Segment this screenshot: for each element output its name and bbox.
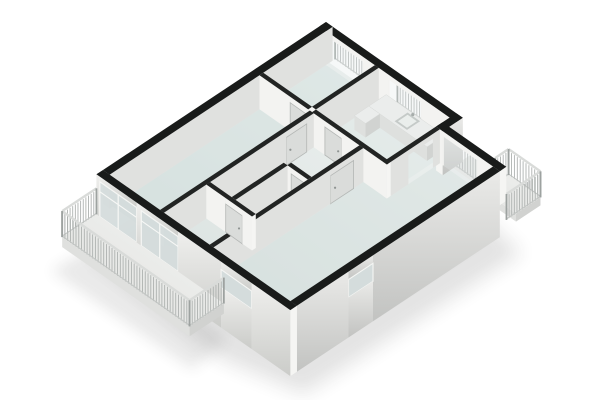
floor-plan-3d-render (0, 0, 600, 400)
faucet-icon (411, 113, 414, 116)
door-handle-icon (238, 227, 240, 229)
door-handle-icon (334, 187, 336, 189)
door-handle-icon (289, 149, 291, 151)
door-handle-icon (337, 150, 339, 152)
floor-plan-svg (0, 0, 600, 400)
